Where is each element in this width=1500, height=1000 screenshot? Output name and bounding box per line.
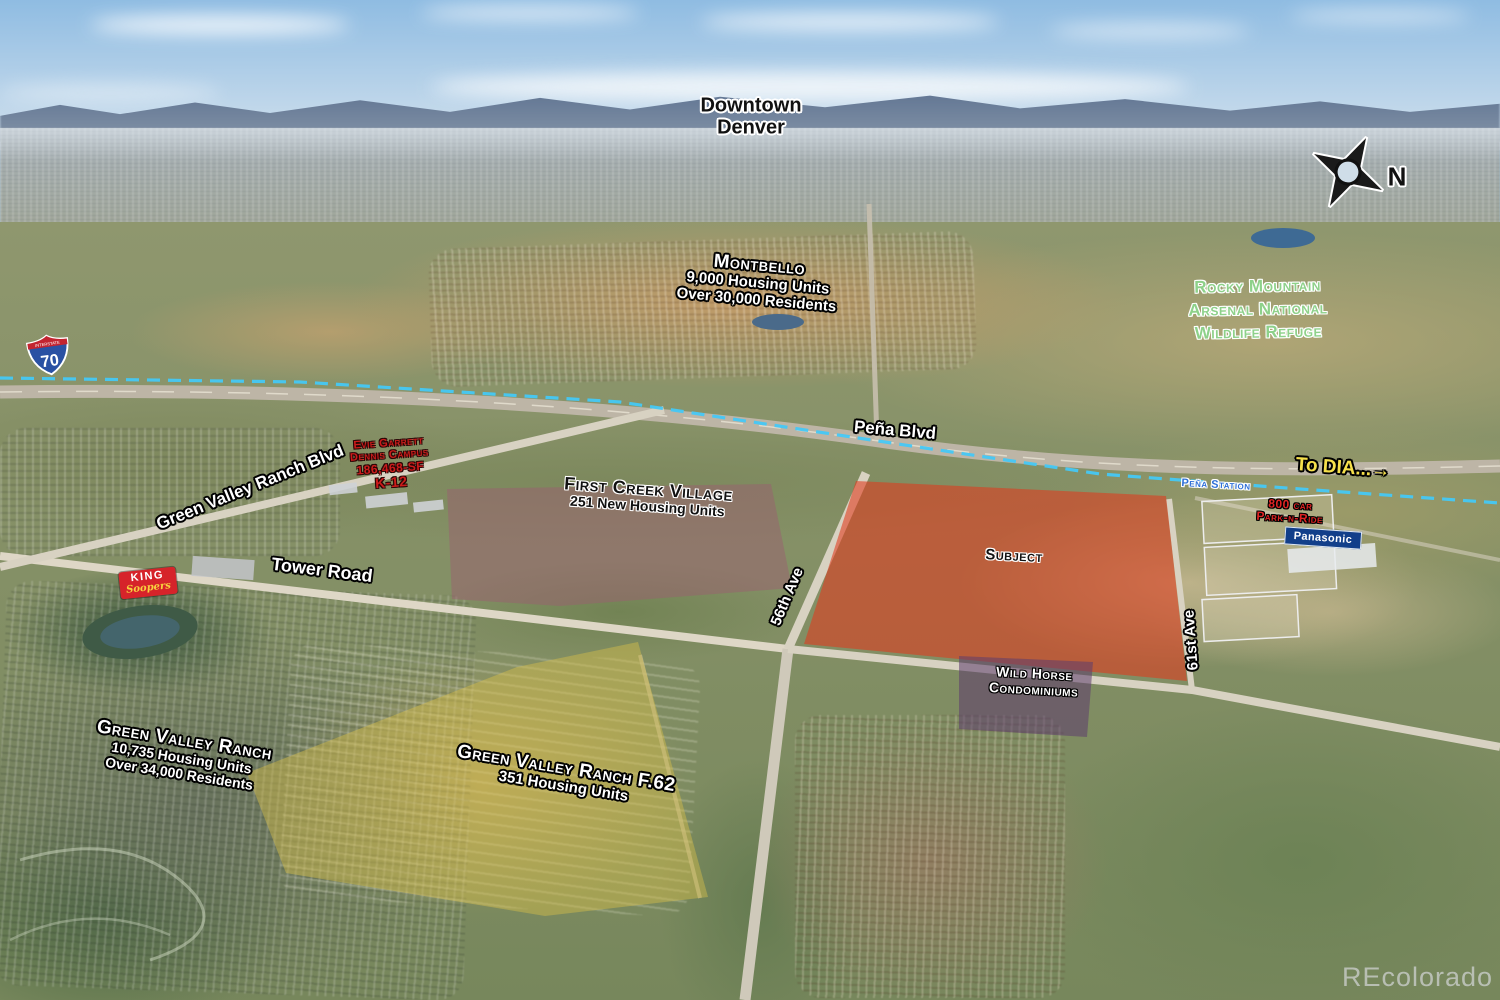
downtown-line2: Denver [700,117,801,139]
south-arterial-road [745,649,788,1000]
arsenal-line2: Arsenal National [1188,297,1327,322]
golf-path [10,919,170,940]
pena-blvd-road [0,391,1500,468]
arsenal-label: Rocky Mountain Arsenal National Wildlife… [1188,274,1328,345]
refuge-lake [1251,228,1315,248]
i70-number-text: 70 [40,351,61,371]
school-label: Evie Garrett Dennis Campus 186,468-SF K-… [349,434,431,493]
subject-label: Subject [985,547,1043,567]
park-n-ride-label: 800 car Park-n-Ride [1256,497,1324,527]
golf-path [20,849,204,960]
compass-north-label: N [1388,162,1407,191]
arsenal-line1: Rocky Mountain [1188,274,1327,299]
north-road [869,204,877,440]
recolorado-watermark: REcolorado [1342,962,1493,993]
wild-horse-label: Wild Horse Condominiums [989,664,1080,700]
subject-parcel [804,481,1187,681]
downtown-denver-label: Downtown Denver [700,95,801,140]
aerial-photo: Downtown Denver Montbello 9,000 Housing … [0,0,1500,1000]
king-soopers-line2: Soopers [126,581,172,596]
arsenal-line3: Wildlife Refuge [1189,320,1328,345]
downtown-line1: Downtown [700,95,801,117]
montbello-pond [752,314,804,330]
i70-shield-icon: INTERSTATE 70 [23,331,74,379]
